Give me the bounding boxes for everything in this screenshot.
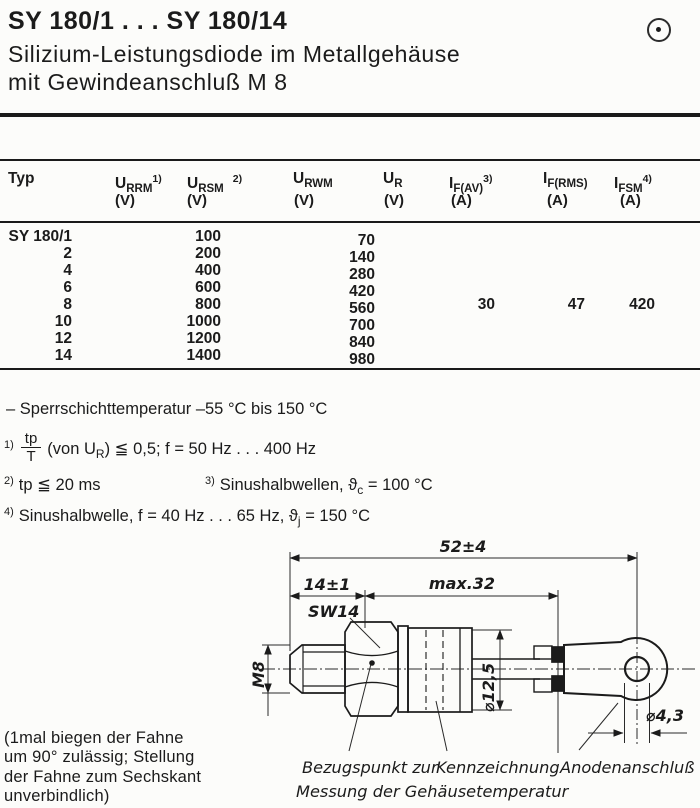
table-row: 10 1000 700: [8, 313, 692, 330]
footnote-ref: 1): [152, 173, 161, 185]
ifsm-value: 420: [612, 296, 655, 314]
urrm-cell: 600: [138, 279, 221, 297]
theta-sub: j: [298, 514, 301, 528]
table-row: 6 600 420: [8, 279, 692, 296]
typ-cell: 14: [8, 347, 72, 365]
footnote-ref: 3): [483, 173, 492, 185]
package-outline-drawing: 52±4 14±1 max.32 SW14 M8 ⌀12,5 ⌀4,3 Bezu…: [250, 538, 700, 808]
unit-a: (A): [620, 192, 641, 209]
tp-over-t-fraction: tpT: [21, 430, 42, 465]
note-2: 2)tp ≦ 20 ms: [4, 475, 100, 495]
note-temperature: – Sperrschichttemperatur –55 °C bis 150 …: [6, 400, 327, 419]
symbol: U: [383, 170, 394, 187]
note-3: 3)Sinushalbwellen, ϑc = 100 °C: [205, 475, 433, 497]
crimp-fill: [552, 647, 564, 662]
symbol: U: [293, 170, 304, 187]
unit-v: (V): [384, 192, 404, 209]
subscript: F(RMS): [547, 178, 587, 190]
unit-a: (A): [451, 192, 472, 209]
dim-label-14: 14±1: [304, 575, 351, 594]
unit-v: (V): [115, 192, 135, 209]
col-header-typ: Typ: [8, 169, 34, 189]
urrm-cell: 200: [138, 245, 221, 263]
table-row: 2 200 140: [8, 245, 692, 262]
note-4-ref: 4): [4, 506, 14, 518]
table-row: 14 1400 980: [8, 347, 692, 364]
bend-note-line3: der Fahne zum Sechskant: [4, 768, 254, 787]
col-header-ur: UR: [383, 169, 403, 194]
crimp-fill: [552, 676, 564, 691]
urwm-cell: 980: [290, 351, 375, 369]
subscript: R: [394, 178, 402, 190]
note-3-text: Sinushalbwellen,: [220, 476, 344, 494]
page-subtitle: Silizium-Leistungsdiode im Metallgehäuse…: [8, 40, 460, 96]
symbol: U: [115, 175, 126, 192]
note-4-text: Sinushalbwelle, f = 40 Hz . . . 65 Hz,: [19, 507, 285, 525]
note-3-value: = 100 °C: [368, 476, 433, 494]
typ-cell: 6: [8, 279, 72, 297]
urrm-cell: 1200: [138, 330, 221, 348]
bend-note-line2: um 90° zulässig; Stellung: [4, 748, 254, 767]
case-body: [408, 628, 472, 712]
bend-note-line1: (1mal biegen der Fahne: [4, 729, 254, 748]
unit-v: (V): [294, 192, 314, 209]
crimp-bottom: [534, 679, 552, 692]
footnote-ref: 4): [643, 173, 652, 185]
fraction-top: tp: [21, 430, 42, 448]
theta-sub: c: [357, 483, 363, 497]
typ-cell: 8: [8, 296, 72, 314]
bend-note: (1mal biegen der Fahne um 90° zulässig; …: [4, 729, 254, 806]
typ-cell: 10: [8, 313, 72, 331]
note-1-text-a: (von U: [47, 440, 96, 458]
theta-symbol: ϑ: [289, 507, 298, 525]
thick-rule: [0, 113, 700, 117]
unit-v: (V): [187, 192, 207, 209]
reference-point-dot: [369, 660, 375, 666]
urrm-cell: 100: [138, 228, 221, 246]
fraction-bottom: T: [21, 448, 42, 465]
note-1-text-b: ) ≦ 0,5; f = 50 Hz . . . 400 Hz: [105, 440, 316, 458]
note-2-text: tp ≦ 20 ms: [19, 476, 101, 494]
thread-label: M8: [250, 661, 268, 688]
urrm-cell: 800: [138, 296, 221, 314]
bend-note-line4: unverbindlich): [4, 787, 254, 806]
col-header-ifrms: IF(RMS): [543, 169, 588, 194]
table-row: 4 400 280: [8, 262, 692, 279]
note-1: 1)tpT(von UR) ≦ 0,5; f = 50 Hz . . . 400…: [4, 430, 316, 469]
datasheet-page: SY 180/1 . . . SY 180/14 Silizium-Leistu…: [0, 0, 700, 808]
if-rms-value: 47: [550, 296, 585, 314]
dim-label-max32: max.32: [429, 574, 495, 593]
table-row: 8 800 560: [8, 296, 692, 313]
subtitle-line-1: Silizium-Leistungsdiode im Metallgehäuse: [8, 40, 460, 68]
anode-leader: [579, 703, 618, 750]
table-row: 12 1200 840: [8, 330, 692, 347]
marking-label: Kennzeichnung: [436, 758, 560, 777]
dia-hole-label: ⌀4,3: [646, 706, 684, 725]
urrm-cell: 1400: [138, 347, 221, 365]
hex-face-line: [345, 651, 398, 656]
dim-label-52: 52±4: [440, 538, 487, 556]
note-3-ref: 3): [205, 475, 215, 487]
if-av-value: 30: [458, 296, 495, 314]
typ-cell: 2: [8, 245, 72, 263]
header-rule: [0, 221, 700, 223]
wrench-size-label: SW14: [308, 602, 359, 621]
typ-cell: 4: [8, 262, 72, 280]
unit-a: (A): [547, 192, 568, 209]
urrm-cell: 1000: [138, 313, 221, 331]
note-4: 4)Sinushalbwelle, f = 40 Hz . . . 65 Hz,…: [4, 506, 370, 528]
table-bottom-rule: [0, 368, 700, 370]
note-2-ref: 2): [4, 475, 14, 487]
subscript: RWM: [304, 178, 333, 190]
col-header-urwm: URWM: [293, 169, 333, 194]
symbol: U: [187, 175, 198, 192]
footnote-ref: 2): [233, 173, 242, 185]
typ-cell: SY 180/1: [8, 228, 72, 246]
ref-point-label-line2: Messung der Gehäusetemperatur: [296, 782, 570, 801]
ref-point-leader: [349, 664, 371, 751]
subtitle-line-2: mit Gewindeanschluß M 8: [8, 68, 460, 96]
marking-leader: [436, 701, 447, 751]
note-4-value: = 150 °C: [305, 507, 370, 525]
crimp-top: [534, 646, 552, 659]
hex-face-line: [345, 683, 398, 688]
note-1-ref: 1): [4, 439, 14, 451]
theta-symbol: ϑ: [348, 476, 357, 494]
urrm-cell: 400: [138, 262, 221, 280]
anode-terminal-label: Anodenanschluß: [559, 758, 694, 777]
page-title: SY 180/1 . . . SY 180/14: [8, 7, 287, 36]
typ-cell: 12: [8, 330, 72, 348]
dia-body-label: ⌀12,5: [479, 663, 498, 712]
circled-dot-icon: [647, 18, 671, 42]
ref-point-label-line1: Bezugspunkt zur: [302, 758, 439, 777]
note-1-sub: R: [96, 447, 105, 461]
table-row: SY 180/1 100 70: [8, 228, 692, 245]
circled-dot-center: [656, 27, 661, 32]
table-top-rule: [0, 159, 700, 161]
